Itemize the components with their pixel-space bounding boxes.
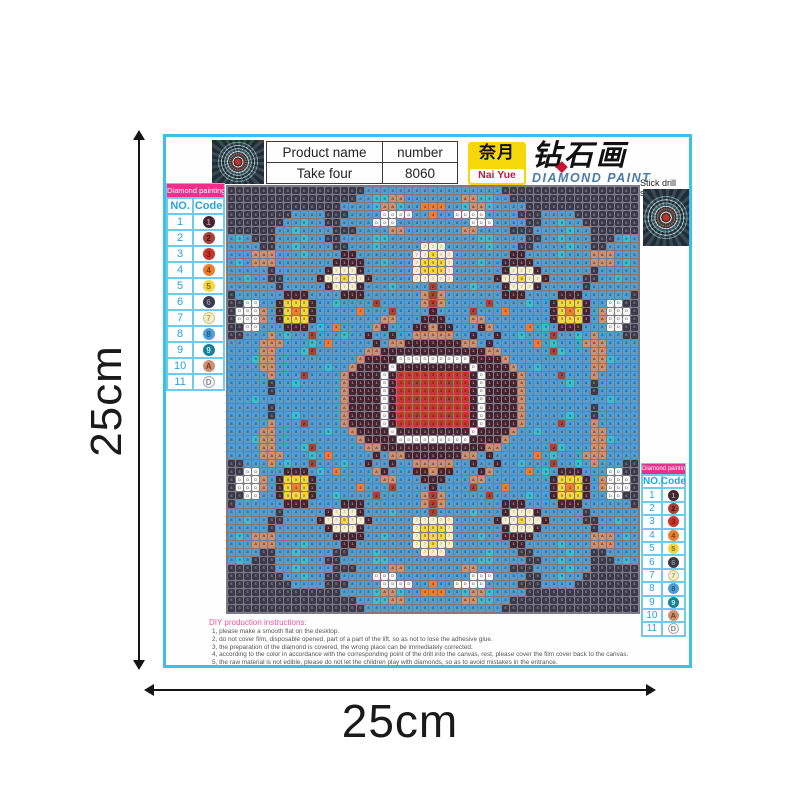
pattern-cell: 8 — [405, 187, 412, 194]
pattern-cell: 8 — [333, 251, 340, 258]
pattern-cell: 8 — [478, 243, 485, 250]
pattern-cell: 8 — [397, 243, 404, 250]
pattern-cell: 8 — [252, 509, 259, 516]
pattern-cell: 8 — [607, 525, 614, 532]
pattern-cell: 8 — [510, 452, 517, 459]
pattern-cell: 5 — [284, 300, 291, 307]
pattern-cell: 6 — [284, 589, 291, 596]
pattern-cell: 1 — [502, 404, 509, 411]
pattern-cell: 1 — [542, 517, 549, 524]
pattern-cell: 1 — [365, 412, 372, 419]
pattern-cell: 8 — [244, 364, 251, 371]
pattern-cell: 8 — [502, 251, 509, 258]
pattern-cell: 5 — [438, 267, 445, 274]
pattern-cell: 8 — [236, 500, 243, 507]
pattern-cell: 8 — [252, 420, 259, 427]
pattern-cell: 8 — [301, 211, 308, 218]
pattern-cell: 8 — [510, 492, 517, 499]
preview-mandala-thumbnail — [212, 140, 264, 184]
pattern-cell: 6 — [518, 211, 525, 218]
pattern-cell: 6 — [615, 589, 622, 596]
pattern-cell: 6 — [615, 211, 622, 218]
pattern-cell: 1 — [438, 468, 445, 475]
pattern-cell: 8 — [518, 492, 525, 499]
pattern-cell: 8 — [558, 267, 565, 274]
pattern-cell: 8 — [526, 412, 533, 419]
pattern-cell: 8 — [252, 380, 259, 387]
pattern-cell: 8 — [454, 259, 461, 266]
pattern-cell: 6 — [325, 195, 332, 202]
pattern-cell: 1 — [333, 533, 340, 540]
pattern-cell: 8 — [534, 380, 541, 387]
pattern-cell: 8 — [558, 460, 565, 467]
pattern-cell: 1 — [502, 412, 509, 419]
pattern-cell: A — [599, 533, 606, 540]
pattern-cell: 8 — [438, 187, 445, 194]
pattern-cell: 6 — [252, 605, 259, 612]
pattern-cell: 9 — [292, 380, 299, 387]
pattern-cell: 4 — [534, 340, 541, 347]
pattern-cell: 8 — [268, 476, 275, 483]
pattern-cell: 9 — [478, 195, 485, 202]
pattern-cell: 6 — [341, 565, 348, 572]
pattern-cell: 1 — [421, 316, 428, 323]
pattern-cell: 8 — [470, 517, 477, 524]
pattern-cell: 6 — [599, 597, 606, 604]
pattern-cell: 1 — [421, 468, 428, 475]
pattern-cell: 8 — [389, 300, 396, 307]
pattern-cell: 8 — [365, 316, 372, 323]
pattern-cell: D — [454, 581, 461, 588]
pattern-cell: 1 — [494, 436, 501, 443]
pattern-cell: 6 — [550, 195, 557, 202]
pattern-cell: 1 — [292, 500, 299, 507]
pattern-cell: 1 — [470, 404, 477, 411]
legend-row: 22 — [167, 230, 224, 246]
pattern-cell: 8 — [534, 316, 541, 323]
pattern-cell: 8 — [228, 235, 235, 242]
pattern-cell: 8 — [317, 340, 324, 347]
pattern-cell: 6 — [623, 211, 630, 218]
pattern-cell: 8 — [397, 468, 404, 475]
pattern-cell: 8 — [260, 300, 267, 307]
pattern-cell: 4 — [526, 324, 533, 331]
pattern-cell: 8 — [373, 332, 380, 339]
pattern-cell: D — [607, 476, 614, 483]
pattern-cell: 1 — [421, 364, 428, 371]
pattern-cell: 1 — [276, 484, 283, 491]
pattern-cell: 6 — [260, 549, 267, 556]
pattern-cell: 1 — [550, 476, 557, 483]
pattern-cell: 6 — [236, 605, 243, 612]
legend-code-cell: 2 — [662, 502, 685, 515]
pattern-cell: 8 — [317, 372, 324, 379]
pattern-cell: 6 — [583, 581, 590, 588]
pattern-cell: 6 — [599, 243, 606, 250]
pattern-cell: 8 — [510, 300, 517, 307]
pattern-cell: 8 — [413, 187, 420, 194]
pattern-cell: 8 — [454, 517, 461, 524]
pattern-cell: 8 — [381, 187, 388, 194]
pattern-cell: 8 — [462, 549, 469, 556]
legend-code-cell: A — [193, 358, 224, 374]
pattern-cell: 8 — [446, 597, 453, 604]
pattern-cell: 6 — [317, 195, 324, 202]
pattern-cell: 8 — [309, 275, 316, 282]
pattern-cell: 8 — [317, 364, 324, 371]
pattern-cell: 8 — [494, 468, 501, 475]
pattern-cell: 1 — [583, 476, 590, 483]
pattern-cell: 8 — [478, 251, 485, 258]
pattern-cell: 6 — [510, 187, 517, 194]
pattern-cell: A — [591, 460, 598, 467]
pattern-cell: 8 — [542, 235, 549, 242]
pattern-cell: 7 — [413, 251, 420, 258]
pattern-cell: 6 — [542, 187, 549, 194]
pattern-cell: 5 — [566, 300, 573, 307]
pattern-cell: 3 — [429, 420, 436, 427]
pattern-cell: 8 — [381, 283, 388, 290]
pattern-cell: 8 — [397, 484, 404, 491]
legend-no: 3 — [642, 515, 662, 528]
pattern-cell: 8 — [365, 203, 372, 210]
pattern-cell: 1 — [502, 388, 509, 395]
pattern-cell: 8 — [599, 412, 606, 419]
pattern-cell: 6 — [333, 557, 340, 564]
pattern-cell: 3 — [438, 372, 445, 379]
pattern-cell: 6 — [631, 605, 638, 612]
pattern-cell: 8 — [502, 227, 509, 234]
pattern-cell: 6 — [599, 589, 606, 596]
pattern-cell: 8 — [534, 227, 541, 234]
pattern-cell: 8 — [454, 219, 461, 226]
pattern-cell: 8 — [615, 460, 622, 467]
pattern-cell: 5 — [438, 533, 445, 540]
pattern-cell: 6 — [502, 605, 509, 612]
pattern-cell: 8 — [607, 291, 614, 298]
pattern-cell: 6 — [244, 219, 251, 226]
legend-no: 7 — [167, 310, 193, 326]
pattern-cell: 5 — [558, 316, 565, 323]
pattern-cell: 1 — [373, 436, 380, 443]
pattern-cell: 8 — [607, 517, 614, 524]
pattern-cell: 8 — [228, 549, 235, 556]
pattern-cell: 2 — [413, 412, 420, 419]
pattern-cell: 6 — [526, 211, 533, 218]
pattern-cell: 8 — [558, 509, 565, 516]
pattern-cell: 6 — [268, 573, 275, 580]
pattern-cell: 7 — [333, 525, 340, 532]
pattern-cell: 8 — [301, 533, 308, 540]
pattern-cell: 6 — [591, 227, 598, 234]
pattern-cell: 1 — [276, 476, 283, 483]
pattern-cell: 3 — [454, 380, 461, 387]
pattern-cell: 8 — [446, 243, 453, 250]
pattern-cell: 8 — [292, 332, 299, 339]
pattern-cell: 6 — [631, 332, 638, 339]
pattern-cell: D — [607, 308, 614, 315]
pattern-cell: 5 — [518, 275, 525, 282]
pattern-cell: 8 — [389, 267, 396, 274]
pattern-cell: 8 — [454, 267, 461, 274]
pattern-cell: 8 — [357, 444, 364, 451]
pattern-cell: 9 — [486, 589, 493, 596]
legend-header-row: NO. Code — [642, 475, 685, 488]
pattern-cell: A — [599, 251, 606, 258]
pattern-cell: 8 — [599, 460, 606, 467]
pattern-cell: 1 — [413, 468, 420, 475]
pattern-cell: 1 — [389, 420, 396, 427]
pattern-cell: 8 — [373, 187, 380, 194]
pattern-cell: 8 — [623, 428, 630, 435]
pattern-cell: 8 — [607, 380, 614, 387]
pattern-cell: 8 — [317, 283, 324, 290]
pattern-cell: 8 — [454, 484, 461, 491]
pattern-cell: 1 — [566, 500, 573, 507]
pattern-cell: 8 — [607, 332, 614, 339]
pattern-cell: 8 — [631, 533, 638, 540]
pattern-cell: 1 — [454, 444, 461, 451]
pattern-cell: 8 — [566, 581, 573, 588]
pattern-cell: A — [260, 541, 267, 548]
pattern-cell: 8 — [389, 533, 396, 540]
pattern-cell: 6 — [615, 203, 622, 210]
pattern-cell: 8 — [244, 283, 251, 290]
pattern-cell: 8 — [236, 267, 243, 274]
pattern-cell: 5 — [292, 300, 299, 307]
pattern-cell: 8 — [228, 509, 235, 516]
legend-code-chip: 1 — [668, 490, 679, 501]
pattern-cell: 1 — [292, 468, 299, 475]
pattern-cell: D — [470, 364, 477, 371]
pattern-cell: 1 — [583, 316, 590, 323]
pattern-cell: 1 — [421, 428, 428, 435]
pattern-cell: 9 — [397, 203, 404, 210]
legend-no: 3 — [167, 246, 193, 262]
pattern-cell: 5 — [566, 316, 573, 323]
pattern-cell: 8 — [317, 267, 324, 274]
pattern-cell: 7 — [421, 517, 428, 524]
pattern-cell: A — [252, 533, 259, 540]
pattern-cell: 8 — [301, 452, 308, 459]
pattern-cell: 6 — [228, 219, 235, 226]
pattern-cell: 8 — [550, 324, 557, 331]
pattern-cell: 8 — [365, 557, 372, 564]
pattern-cell: 8 — [276, 460, 283, 467]
pattern-cell: 1 — [429, 452, 436, 459]
pattern-cell: 1 — [373, 396, 380, 403]
pattern-cell: 6 — [228, 227, 235, 234]
pattern-cell: 8 — [462, 509, 469, 516]
pattern-cell: 8 — [317, 404, 324, 411]
pattern-cell: 1 — [413, 428, 420, 435]
pattern-cell: 6 — [276, 573, 283, 580]
pattern-cell: 5 — [341, 275, 348, 282]
pattern-cell: 6 — [244, 573, 251, 580]
pattern-cell: 8 — [566, 428, 573, 435]
pattern-cell: 8 — [526, 396, 533, 403]
pattern-cell: 8 — [325, 436, 332, 443]
pattern-cell: 8 — [309, 380, 316, 387]
instructions-title: DIY production instructions: — [209, 618, 687, 627]
pattern-cell: 9 — [558, 219, 565, 226]
pattern-cell: 8 — [317, 549, 324, 556]
pattern-cell: 3 — [397, 396, 404, 403]
pattern-cell: 8 — [317, 412, 324, 419]
pattern-cell: 6 — [292, 597, 299, 604]
pattern-cell: 1 — [284, 324, 291, 331]
pattern-cell: A — [268, 444, 275, 451]
pattern-cell: 8 — [244, 356, 251, 363]
pattern-cell: 8 — [292, 444, 299, 451]
pattern-cell: 8 — [373, 517, 380, 524]
pattern-cell: 6 — [309, 203, 316, 210]
pattern-cell: 8 — [502, 541, 509, 548]
pattern-cell: 1 — [550, 300, 557, 307]
pattern-cell: 8 — [260, 525, 267, 532]
pattern-cell: 6 — [607, 581, 614, 588]
pattern-cell: D — [486, 219, 493, 226]
pattern-cell: 8 — [405, 500, 412, 507]
pattern-cell: 8 — [566, 211, 573, 218]
pattern-cell: A — [591, 340, 598, 347]
pattern-cell: 8 — [284, 380, 291, 387]
pattern-cell: 8 — [502, 348, 509, 355]
pattern-cell: 8 — [317, 308, 324, 315]
pattern-cell: 8 — [518, 203, 525, 210]
pattern-cell: 6 — [623, 227, 630, 234]
pattern-cell: 8 — [236, 404, 243, 411]
pattern-cell: 1 — [438, 324, 445, 331]
pattern-cell: 2 — [389, 308, 396, 315]
pattern-cell: 5 — [575, 476, 582, 483]
pattern-cell: 8 — [494, 557, 501, 564]
pattern-cell: 8 — [252, 275, 259, 282]
pattern-cell: 8 — [357, 203, 364, 210]
pattern-cell: 8 — [583, 332, 590, 339]
pattern-cell: 8 — [462, 300, 469, 307]
pattern-cell: A — [486, 348, 493, 355]
pattern-cell: A — [421, 291, 428, 298]
pattern-cell: 3 — [405, 380, 412, 387]
pattern-cell: 8 — [365, 235, 372, 242]
pattern-cell: 6 — [583, 219, 590, 226]
pattern-cell: 6 — [607, 557, 614, 564]
pattern-cell: 9 — [623, 259, 630, 266]
pattern-cell: 1 — [494, 380, 501, 387]
pattern-cell: 8 — [526, 348, 533, 355]
pattern-cell: 8 — [542, 332, 549, 339]
pattern-cell: 8 — [558, 227, 565, 234]
pattern-cell: 1 — [429, 428, 436, 435]
pattern-cell: 8 — [228, 364, 235, 371]
pattern-cell: 8 — [486, 316, 493, 323]
pattern-cell: 8 — [623, 251, 630, 258]
pattern-cell: 1 — [478, 444, 485, 451]
pattern-cell: 4 — [357, 484, 364, 491]
legend-no: 10 — [167, 358, 193, 374]
pattern-cell: 8 — [446, 605, 453, 612]
pattern-cell: A — [478, 203, 485, 210]
pattern-cell: 8 — [631, 340, 638, 347]
pattern-cell: 8 — [631, 364, 638, 371]
pattern-cell: 7 — [510, 517, 517, 524]
pattern-cell: D — [381, 573, 388, 580]
pattern-cell: 1 — [325, 509, 332, 516]
pattern-cell: 3 — [421, 404, 428, 411]
legend-table-right: Diamond painting NO. Code 11223344556677… — [641, 463, 686, 637]
pattern-cell: D — [236, 316, 243, 323]
pattern-cell: 6 — [534, 219, 541, 226]
pattern-cell: 8 — [486, 460, 493, 467]
pattern-cell: 1 — [470, 412, 477, 419]
pattern-cell: 8 — [397, 275, 404, 282]
legend-code-cell: 5 — [193, 278, 224, 294]
pattern-cell: 9 — [623, 533, 630, 540]
pattern-cell: 6 — [631, 500, 638, 507]
pattern-cell: 1 — [405, 340, 412, 347]
pattern-cell: 5 — [292, 316, 299, 323]
pattern-cell: 1 — [373, 340, 380, 347]
pattern-cell: 8 — [301, 525, 308, 532]
pattern-cell: 6 — [349, 605, 356, 612]
pattern-cell: 8 — [365, 565, 372, 572]
pattern-cell: 6 — [268, 219, 275, 226]
pattern-cell: 6 — [566, 187, 573, 194]
pattern-cell: 8 — [333, 340, 340, 347]
pattern-cell: 8 — [558, 436, 565, 443]
pattern-cell: 8 — [325, 444, 332, 451]
pattern-cell: 1 — [429, 444, 436, 451]
pattern-cell: 8 — [462, 492, 469, 499]
pattern-cell: 1 — [566, 468, 573, 475]
pattern-cell: 8 — [341, 324, 348, 331]
pattern-cell: 6 — [284, 211, 291, 218]
pattern-cell: 8 — [373, 509, 380, 516]
pattern-cell: 8 — [349, 476, 356, 483]
pattern-cell: 8 — [438, 565, 445, 572]
pattern-cell: 9 — [566, 380, 573, 387]
pattern-cell: 8 — [365, 219, 372, 226]
pattern-cell: 8 — [397, 500, 404, 507]
pattern-cell: 8 — [276, 380, 283, 387]
pattern-cell: 6 — [228, 460, 235, 467]
pattern-cell: 8 — [228, 541, 235, 548]
pattern-cell: 8 — [325, 460, 332, 467]
pattern-cell: 8 — [365, 605, 372, 612]
pattern-cell: 1 — [309, 492, 316, 499]
pattern-cell: 5 — [301, 492, 308, 499]
pattern-cell: A — [260, 340, 267, 347]
pattern-cell: 5 — [301, 300, 308, 307]
pattern-cell: D — [615, 308, 622, 315]
legend-row: 44 — [642, 529, 685, 542]
pattern-cell: 8 — [518, 436, 525, 443]
pattern-cell: 8 — [228, 396, 235, 403]
pattern-cell: 1 — [389, 444, 396, 451]
pattern-cell: 5 — [284, 476, 291, 483]
pattern-cell: 9 — [373, 235, 380, 242]
pattern-cell: 8 — [349, 219, 356, 226]
pattern-cell: 8 — [623, 500, 630, 507]
pattern-cell: 6 — [558, 589, 565, 596]
pattern-cell: 6 — [510, 605, 517, 612]
pattern-cell: 8 — [365, 291, 372, 298]
pattern-cell: 6 — [252, 235, 259, 242]
pattern-cell: 1 — [470, 380, 477, 387]
pattern-cell: 1 — [526, 259, 533, 266]
pattern-cell: 6 — [276, 195, 283, 202]
